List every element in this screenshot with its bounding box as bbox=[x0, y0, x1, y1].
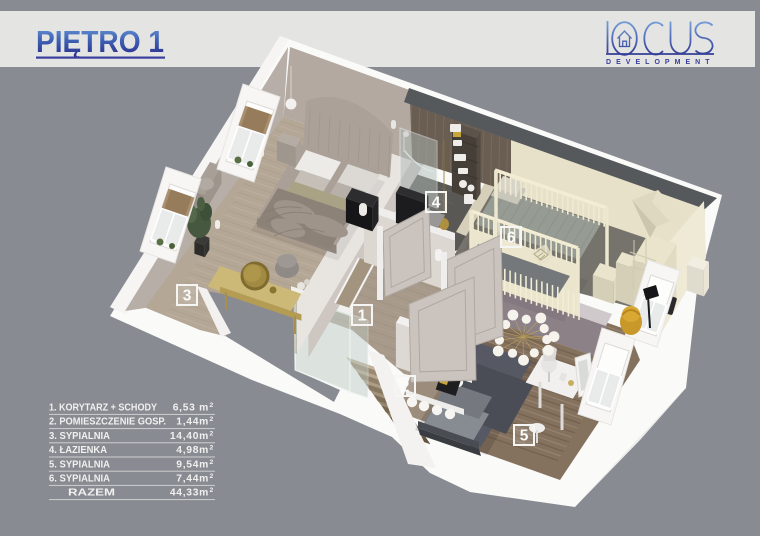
svg-text:2: 2 bbox=[210, 430, 214, 437]
svg-text:6. SYPIALNIA: 6. SYPIALNIA bbox=[49, 474, 110, 485]
svg-text:1,44m: 1,44m bbox=[176, 417, 209, 428]
svg-text:1: 1 bbox=[358, 308, 367, 325]
svg-text:6,53 m: 6,53 m bbox=[173, 403, 209, 414]
svg-text:6: 6 bbox=[507, 230, 516, 247]
svg-text:PIĘTRO 1: PIĘTRO 1 bbox=[36, 24, 164, 59]
svg-text:2: 2 bbox=[210, 416, 214, 423]
svg-text:44,33m: 44,33m bbox=[170, 488, 209, 499]
svg-text:DEVELOPMENT: DEVELOPMENT bbox=[606, 59, 714, 66]
svg-text:3. SYPIALNIA: 3. SYPIALNIA bbox=[49, 431, 110, 442]
svg-text:2: 2 bbox=[210, 459, 214, 466]
svg-text:5: 5 bbox=[520, 428, 529, 445]
svg-text:3: 3 bbox=[183, 288, 192, 305]
svg-text:RAZEM: RAZEM bbox=[68, 488, 115, 499]
svg-text:2: 2 bbox=[210, 445, 214, 452]
svg-text:4,98m: 4,98m bbox=[176, 445, 209, 456]
svg-text:4. ŁAZIENKA: 4. ŁAZIENKA bbox=[49, 445, 107, 456]
svg-text:4: 4 bbox=[432, 195, 441, 212]
svg-text:7,44m: 7,44m bbox=[176, 474, 209, 485]
svg-text:14,40m: 14,40m bbox=[170, 431, 209, 442]
svg-text:2: 2 bbox=[210, 487, 214, 494]
svg-text:9,54m: 9,54m bbox=[176, 459, 209, 470]
svg-text:2. POMIESZCZENIE GOSP.: 2. POMIESZCZENIE GOSP. bbox=[49, 417, 166, 428]
svg-text:5. SYPIALNIA: 5. SYPIALNIA bbox=[49, 459, 110, 470]
svg-text:2: 2 bbox=[401, 379, 410, 396]
svg-text:1. KORYTARZ + SCHODY: 1. KORYTARZ + SCHODY bbox=[49, 403, 157, 414]
svg-text:2: 2 bbox=[210, 473, 214, 480]
svg-text:2: 2 bbox=[210, 402, 214, 409]
